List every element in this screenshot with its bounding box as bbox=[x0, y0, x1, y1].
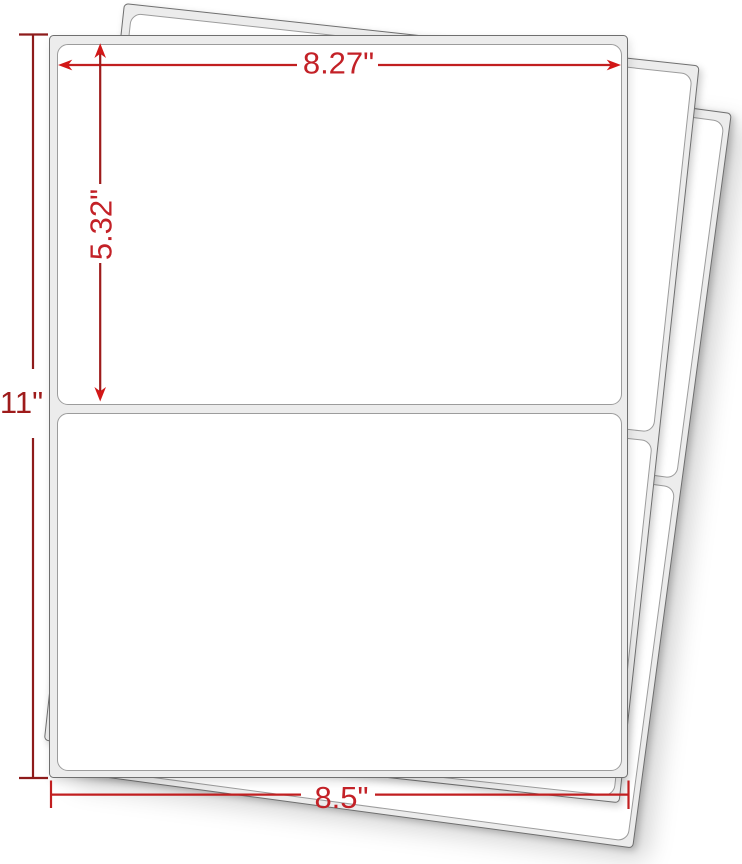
svg-text:8.5": 8.5" bbox=[314, 780, 368, 815]
svg-text:5.32": 5.32" bbox=[84, 189, 119, 260]
svg-text:11": 11" bbox=[0, 385, 43, 420]
svg-text:8.27": 8.27" bbox=[303, 46, 374, 81]
